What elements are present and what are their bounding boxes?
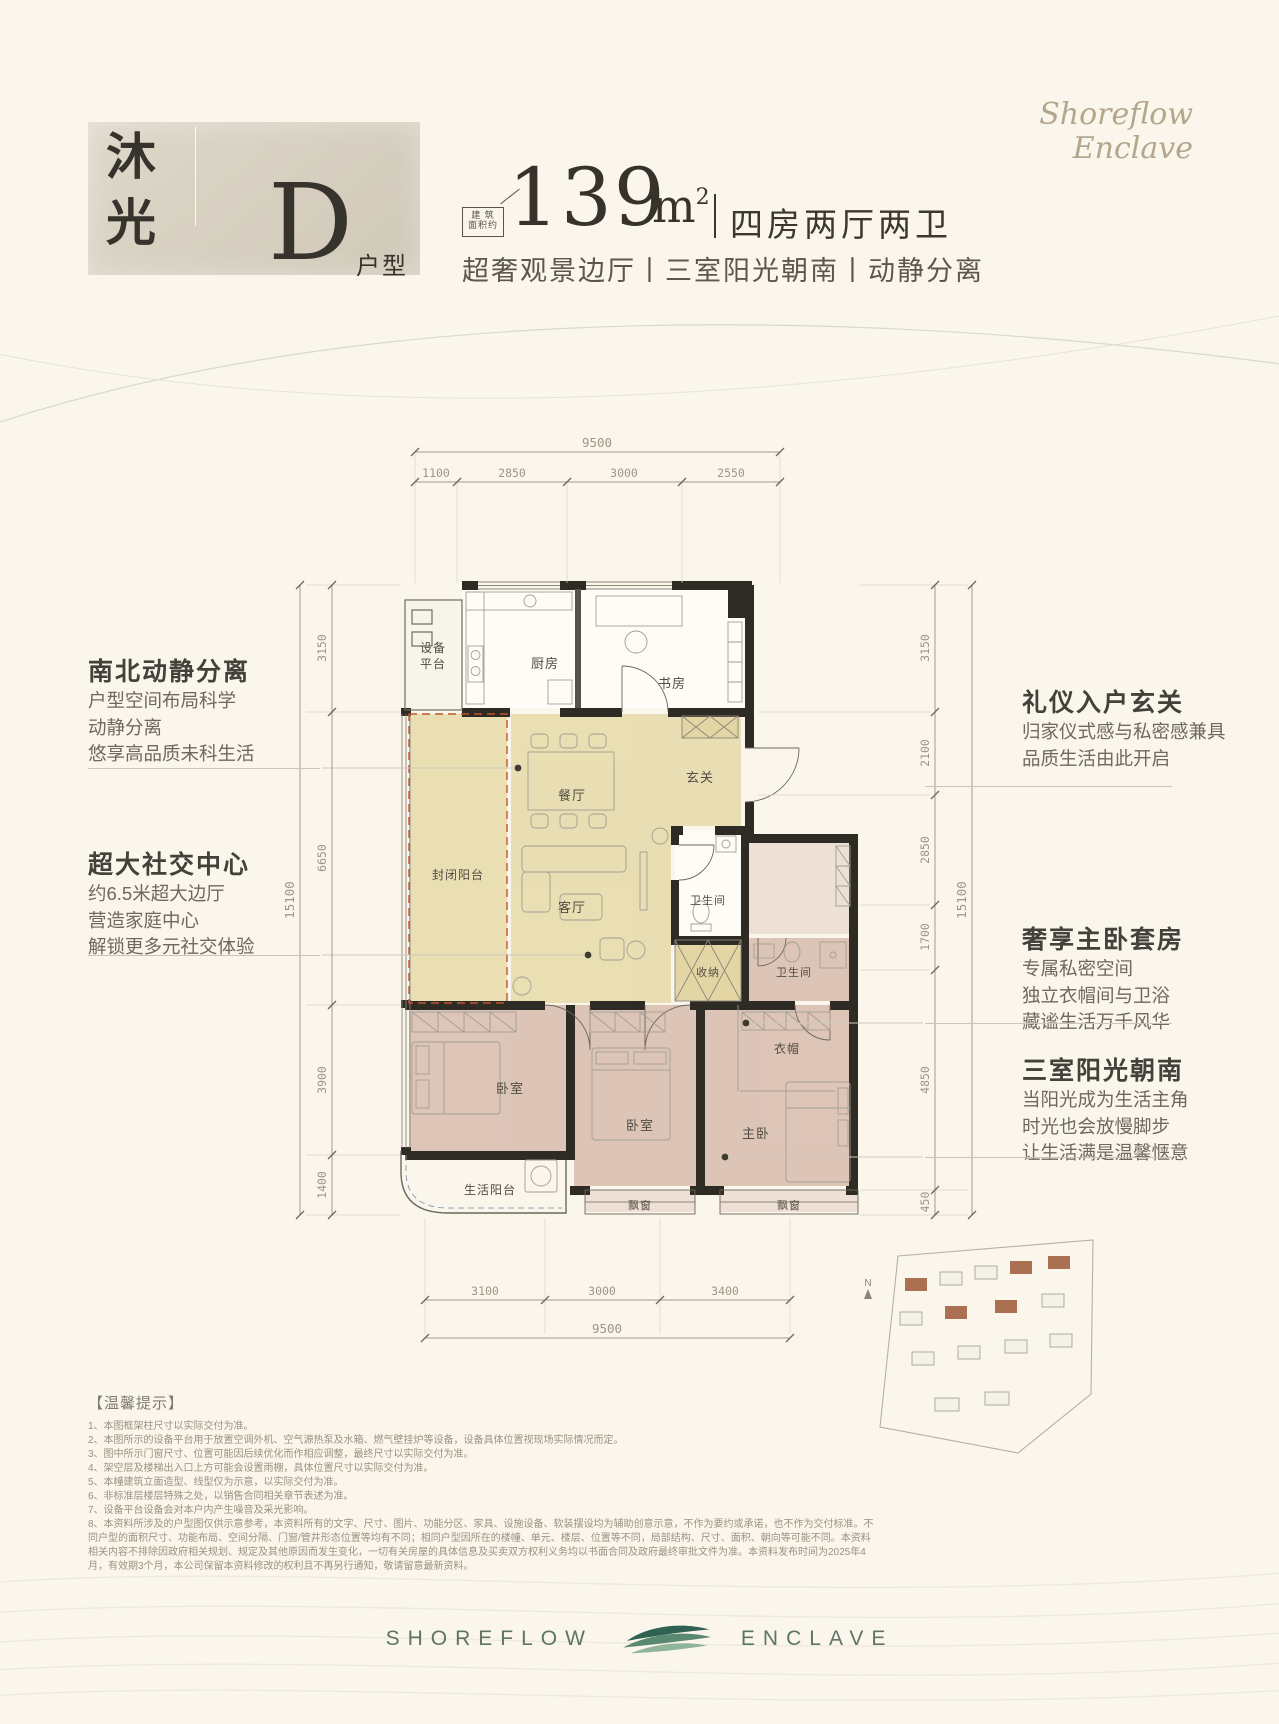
room-label-dining: 餐厅 [558,788,586,803]
annotation-left-1: 南北动静分离 户型空间布局科学 动静分离 悠享高品质未科生活 [88,652,348,768]
room-label-living: 客厅 [558,900,586,915]
annotation-line: 专属私密空间 [1022,956,1279,983]
dim-top-2: 3000 [610,466,638,480]
siteplan-north-label: N [864,1278,871,1289]
annotation-right-2: 奢享主卧套房 专属私密空间 独立衣帽间与卫浴 藏谧生活万千风华 [1022,920,1279,1036]
annotation-line: 品质生活由此开启 [1022,746,1279,773]
area-unit: m2 [652,183,710,229]
notice-title: 【温馨提示】 [88,1392,184,1413]
annotation-left-2: 超大社交中心 约6.5米超大边厅 营造家庭中心 解锁更多元社交体验 [88,845,348,961]
room-label-bay2: 飘窗 [777,1198,801,1212]
footer-brand-right: ENCLAVE [741,1627,893,1651]
header-divider [714,194,716,238]
dim-top-3: 2550 [717,466,745,480]
siteplan: N [864,1240,1093,1453]
room-label-bay1: 飘窗 [628,1198,652,1212]
room-label-bedroom1: 卧室 [496,1081,524,1096]
room-label-equipment-1: 设备 [420,641,446,655]
brand-divider [195,126,196,226]
annotation-line: 动静分离 [88,715,348,742]
area-stamp: 建 筑 面积约 [462,207,504,237]
room-label-study: 书房 [658,676,686,691]
annotation-title: 奢享主卧套房 [1022,920,1279,956]
brand-name-char1: 沐 [106,132,156,182]
annotation-line: 当阳光成为生活主角 [1022,1087,1279,1114]
dim-left-2: 3900 [315,1066,329,1094]
dim-right-5: 450 [918,1192,932,1213]
dim-bottom-1: 3000 [588,1284,616,1298]
notice-list: 1、本图框架柱尺寸以实际交付为准。 2、本图所示的设备平台用于放置空调外机、空气… [88,1420,878,1574]
brand-english-line1: Shoreflow [950,98,1193,132]
brand-english: Shoreflow Enclave [950,98,1193,166]
room-label-life-balcony: 生活阳台 [464,1182,516,1197]
notice-item: 5、本幢建筑立面造型、线型仅为示意，以实际交付为准。 [88,1476,878,1490]
dim-right-0: 3150 [918,634,932,662]
annotation-line: 时光也会放慢脚步 [1022,1114,1279,1141]
wave-logo-icon [619,1618,715,1660]
dim-right-1: 2100 [918,739,932,767]
annotation-right-3: 三室阳光朝南 当阳光成为生活主角 时光也会放慢脚步 让生活满是温馨惬意 [1022,1051,1279,1167]
notice-item: 2、本图所示的设备平台用于放置空调外机、空气源热泵及水箱、燃气壁挂炉等设备，设备… [88,1434,878,1448]
annotation-title: 南北动静分离 [88,652,348,688]
annotation-rule [88,955,320,956]
room-label-enclosed-balcony: 封闭阳台 [432,867,484,882]
room-label-bath2: 卫生间 [776,965,812,979]
decor-top-curves [0,310,1279,432]
siteplan-buildings [900,1256,1072,1411]
dim-right-4: 4850 [918,1066,932,1094]
annotation-title: 超大社交中心 [88,845,348,881]
dim-bottom-2: 3400 [711,1284,739,1298]
annotation-rule [925,1023,1172,1024]
annotation-title: 礼仪入户玄关 [1022,683,1279,719]
annotation-line: 悠享高品质未科生活 [88,741,348,768]
annotation-title: 三室阳光朝南 [1022,1051,1279,1087]
area-value: 139 [508,158,667,238]
annotation-line: 约6.5米超大边厅 [88,881,348,908]
room-label-bedroom2: 卧室 [626,1118,654,1133]
annotation-right-1: 礼仪入户玄关 归家仪式感与私密感兼具 品质生活由此开启 [1022,683,1279,772]
brand-english-line2: Enclave [950,132,1193,166]
layout-summary: 四房两厅两卫 [730,198,952,246]
dim-top-total: 9500 [582,435,612,450]
annotation-line: 户型空间布局科学 [88,688,348,715]
unit-suffix-label: 户型 [356,246,408,281]
notice-item: 4、架空层及楼梯出入口上方可能会设置雨棚，具体位置尺寸以实际交付为准。 [88,1462,878,1476]
dim-top-0: 1100 [422,466,450,480]
annotation-rule [925,786,1172,787]
unit-letter: D [268,178,353,268]
header-subtitle: 超奢观景边厅丨三室阳光朝南丨动静分离 [462,249,984,288]
room-label-kitchen: 厨房 [531,656,559,671]
room-label-equipment-2: 平台 [420,656,446,671]
footer-brand-left: SHOREFLOW [386,1627,593,1651]
room-label-cloakroom: 衣帽 [774,1041,800,1056]
annotation-rule [925,1157,1172,1158]
notice-item: 1、本图框架柱尺寸以实际交付为准。 [88,1420,878,1434]
annotation-line: 独立衣帽间与卫浴 [1022,983,1279,1010]
area-stamp-row1: 建 筑 [463,210,503,220]
annotation-line: 让生活满是温馨惬意 [1022,1140,1279,1167]
room-label-bath1: 卫生间 [690,893,726,907]
dim-right-2: 2850 [918,836,932,864]
notice-item: 6、非标准层楼层特殊之处，以销售合同相关章节表述为准。 [88,1490,878,1504]
footer-brand: SHOREFLOW ENCLAVE [0,1618,1279,1660]
dim-top-1: 2850 [498,466,526,480]
area-unit-sup: 2 [696,185,710,210]
dim-right-total: 15100 [954,881,969,919]
annotation-line: 归家仪式感与私密感兼具 [1022,719,1279,746]
notice-item: 8、本资料所涉及的户型图仅供示意参考，本资料所有的文字、尺寸、图片、功能分区、家… [88,1518,878,1574]
dim-left-3: 1400 [315,1171,329,1199]
room-label-foyer: 玄关 [686,770,714,785]
area-unit-base: m [652,179,696,233]
dim-bottom-0: 3100 [471,1284,499,1298]
dim-right-3: 1700 [918,923,932,951]
notice-item: 7、设备平台设备会对本户内产生噪音及采光影响。 [88,1504,878,1518]
annotation-line: 解锁更多元社交体验 [88,934,348,961]
annotation-line: 营造家庭中心 [88,908,348,935]
dim-bottom-total: 9500 [592,1321,622,1336]
brand-name-char2: 光 [106,198,156,248]
annotation-rule [88,768,320,769]
north-arrow-icon [864,1289,872,1299]
brand-block: 沐 光 D 户型 [88,122,420,275]
notice-item: 3、图中所示门窗尺寸、位置可能因后续优化而作相应调整，最终尺寸以实际交付为准。 [88,1448,878,1462]
area-stamp-row2: 面积约 [463,220,503,230]
room-label-master: 主卧 [742,1126,770,1141]
room-label-storage: 收纳 [696,965,720,979]
